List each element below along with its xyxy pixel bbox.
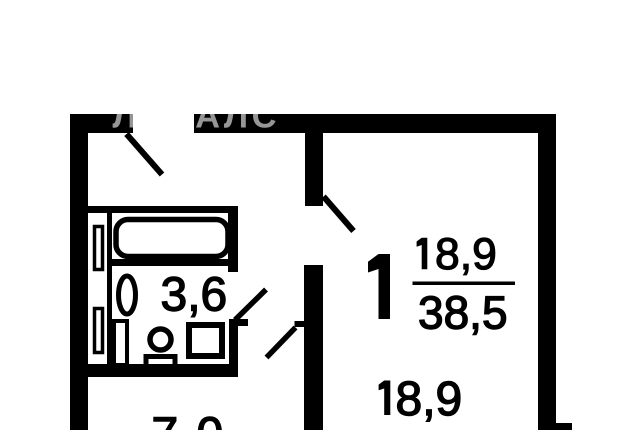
svg-text:8,9: 8,9 bbox=[396, 373, 463, 426]
svg-text:8,9: 8,9 bbox=[435, 230, 497, 279]
svg-text:7,0: 7,0 bbox=[152, 409, 226, 430]
svg-text:ЛОКАЛС: ЛОКАЛС bbox=[113, 98, 281, 136]
svg-text:38,5: 38,5 bbox=[418, 287, 508, 339]
svg-text:3,6: 3,6 bbox=[161, 269, 228, 322]
